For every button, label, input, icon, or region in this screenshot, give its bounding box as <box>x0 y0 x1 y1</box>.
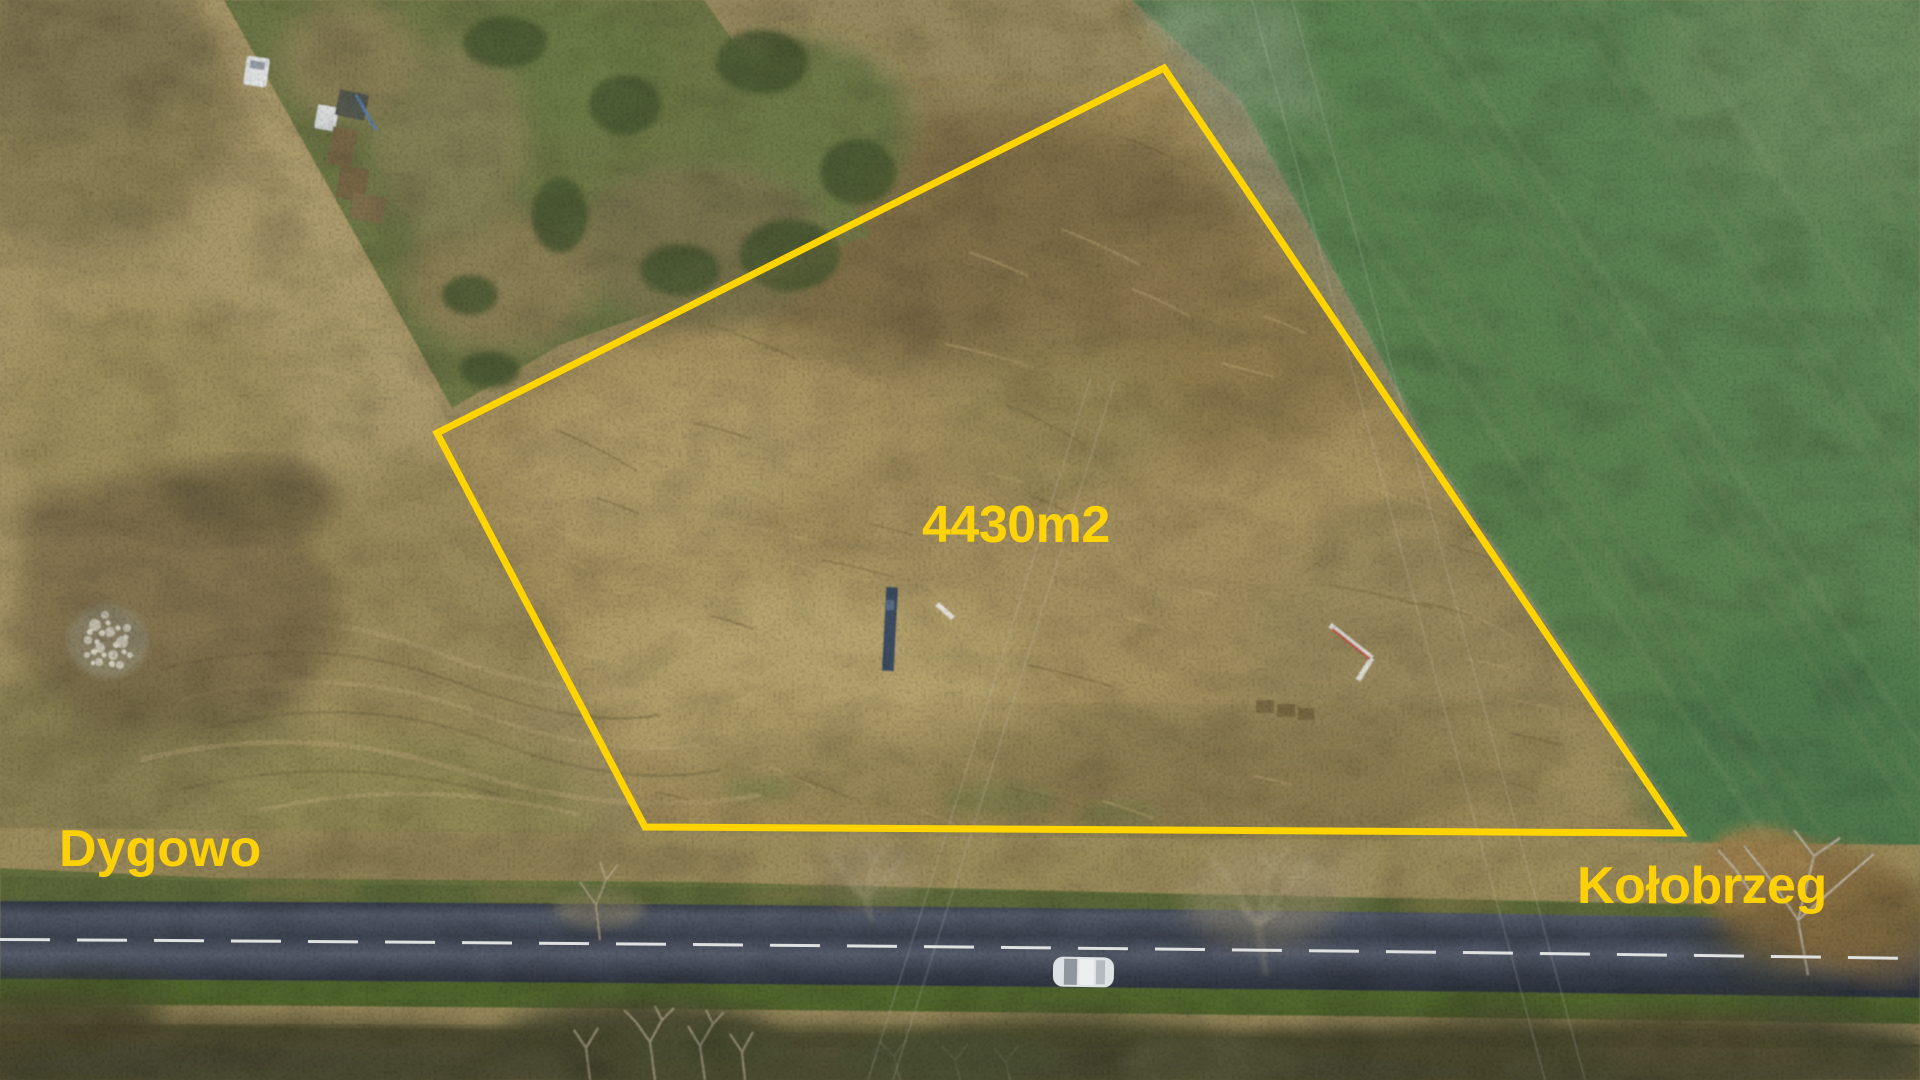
svg-text:4430m2: 4430m2 <box>922 496 1110 554</box>
svg-text:Dygowo: Dygowo <box>59 820 261 878</box>
svg-text:Kołobrzeg: Kołobrzeg <box>1577 857 1827 915</box>
